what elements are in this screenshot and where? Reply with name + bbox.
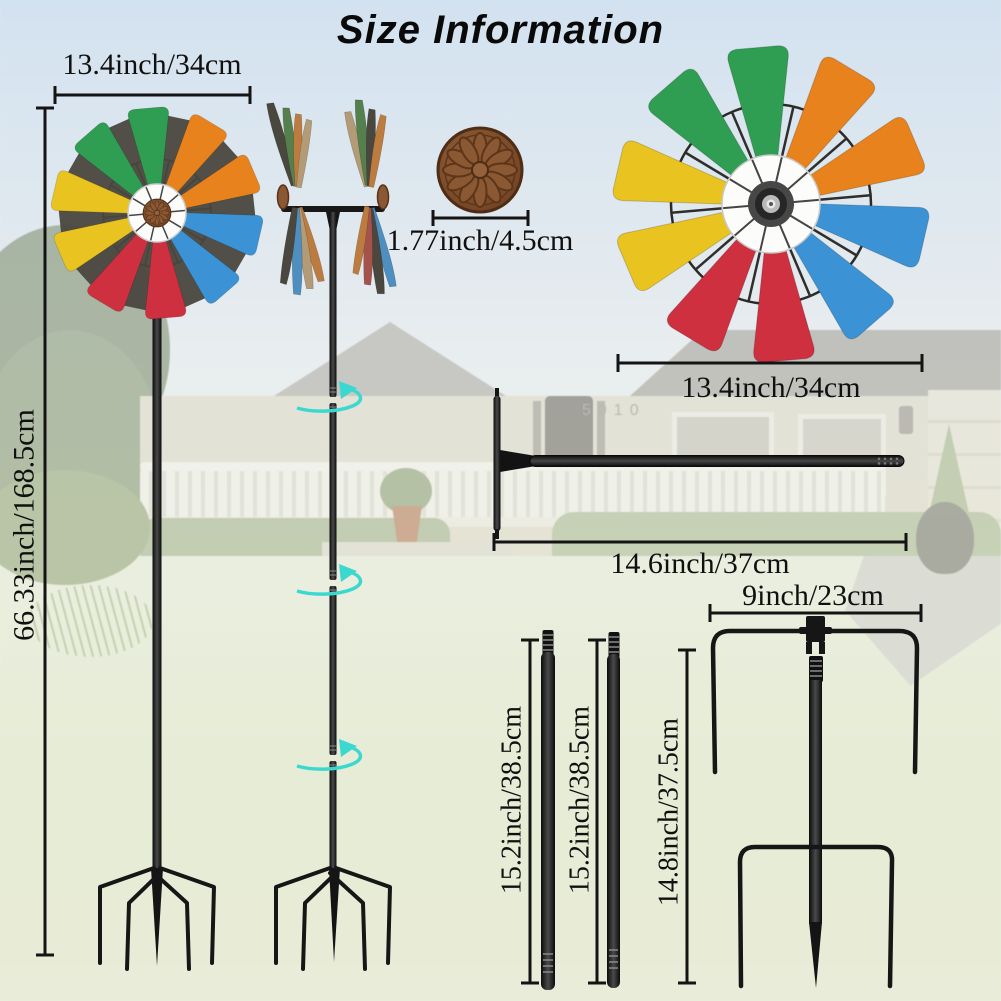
- dim-stake-length: 14.8inch/37.5cm: [654, 650, 697, 983]
- dim-label-segment-2: 15.2inch/38.5cm: [565, 706, 596, 894]
- pole-segment-2: [607, 632, 620, 988]
- pole-segment-1: [541, 630, 555, 990]
- flower-cap-icon: [438, 128, 522, 212]
- page-title: Size Information: [0, 8, 1001, 53]
- windmill-pole: [153, 240, 162, 872]
- crossbar-rod-part: [494, 388, 905, 539]
- ground-stake-part: [713, 616, 917, 988]
- hub-cap-icon: [143, 199, 171, 227]
- dim-segment-1: 15.2inch/38.5cm: [497, 640, 540, 983]
- dim-rod-length: 14.6inch/37cm: [494, 533, 906, 580]
- size-information-graphic: 5010 Size Information: [0, 0, 1001, 1001]
- dim-segment-2: 15.2inch/38.5cm: [565, 640, 607, 983]
- windmill-wheel-large: [611, 45, 931, 363]
- side-rotor-right: [343, 99, 398, 295]
- side-hub-cap-icon: [378, 185, 389, 209]
- dim-label-rod-length: 14.6inch/37cm: [610, 547, 789, 580]
- side-rotor-left: [265, 101, 326, 295]
- stake-collar-flange: [799, 627, 832, 634]
- stake-thread: [809, 656, 823, 682]
- hub-bearing-icon: [748, 181, 794, 227]
- dim-label-cap-diameter: 1.77inch/4.5cm: [387, 224, 574, 257]
- dim-left-wheel-width: 13.4inch/34cm: [55, 48, 250, 104]
- dim-label-stake-length: 14.8inch/37.5cm: [654, 718, 685, 906]
- dim-overall-height: 66.33inch/168.5cm: [8, 108, 55, 955]
- side-hub-cap-icon: [278, 185, 289, 209]
- side-windmill: [265, 99, 398, 969]
- windmill-pole-sections: [330, 212, 337, 872]
- dim-label-stake-width: 9inch/23cm: [742, 579, 884, 612]
- flower-cap-detail: 1.77inch/4.5cm: [387, 128, 574, 257]
- dim-label-overall-height: 66.33inch/168.5cm: [8, 409, 41, 641]
- windmill-wheel-small: [50, 106, 264, 319]
- dim-label-segment-1: 15.2inch/38.5cm: [497, 706, 528, 894]
- product-diagram: 13.4inch/34cm 66.33inch/168.5cm: [0, 0, 1001, 1001]
- stake-shaft: [809, 680, 822, 924]
- dim-label-wheel-width: 13.4inch/34cm: [681, 371, 860, 404]
- dim-stake-width: 9inch/23cm: [710, 579, 921, 622]
- stake-spike: [809, 922, 822, 988]
- dim-wheel-width: 13.4inch/34cm: [618, 354, 922, 404]
- front-windmill: [50, 106, 264, 969]
